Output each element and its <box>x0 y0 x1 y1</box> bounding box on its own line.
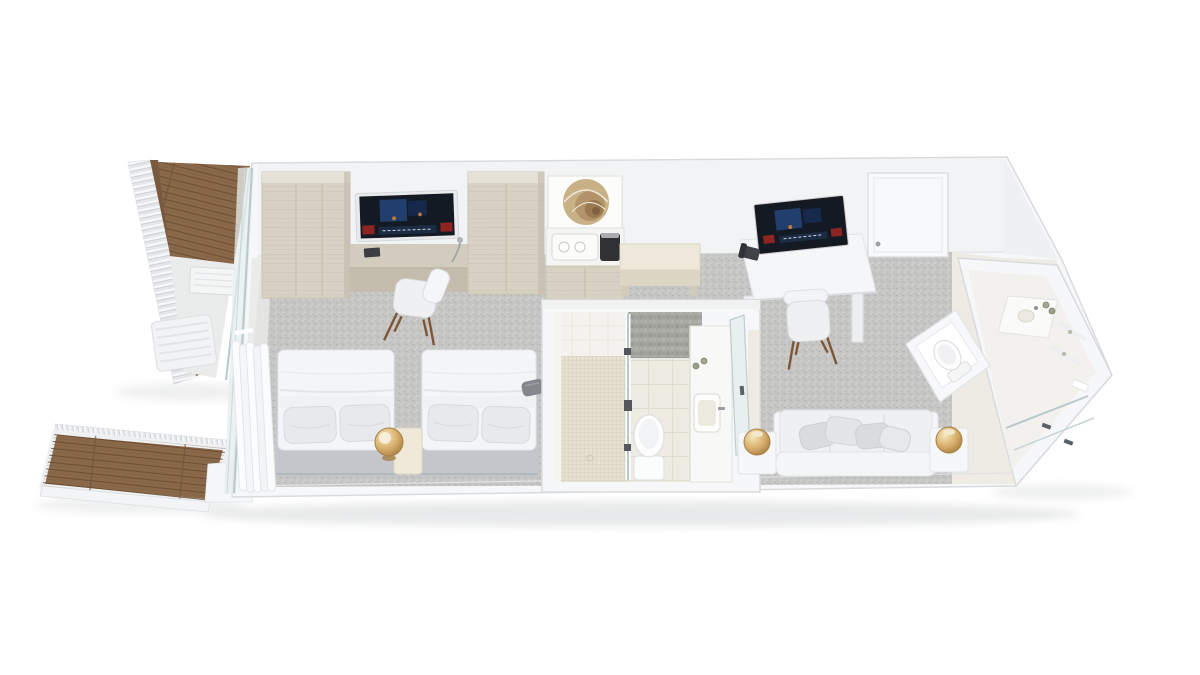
vanity <box>690 326 732 482</box>
cup <box>575 242 585 252</box>
shower-door-hinge <box>624 348 631 355</box>
sofa-backrest <box>776 452 936 476</box>
toilet <box>634 415 664 480</box>
side-table-left <box>738 429 776 474</box>
floorplan-render <box>0 0 1200 675</box>
faucet-2 <box>1034 306 1038 310</box>
amenity-bottle <box>1049 308 1055 314</box>
wardrobe-1-side-face <box>344 172 350 298</box>
twin-bed-2 <box>420 350 538 476</box>
sink-basin <box>698 400 716 426</box>
wall-tv <box>355 190 459 242</box>
amenity-bottle <box>1043 302 1049 308</box>
shower-wall-tiles <box>554 312 628 356</box>
walk-in-shower <box>554 312 628 482</box>
faucet <box>718 407 725 410</box>
bathroom-center <box>542 300 760 492</box>
bench-front <box>620 270 700 286</box>
entry-gap <box>748 330 759 440</box>
chair-seat <box>786 300 831 343</box>
wardrobe-2 <box>468 172 544 294</box>
entry-door-handle <box>740 386 745 395</box>
shower-handle <box>1064 439 1074 446</box>
amenity-bottle <box>693 363 699 369</box>
wardrobe-1 <box>262 172 350 298</box>
nautilus-artwork <box>548 176 622 228</box>
wardrobe-1-top-face <box>262 172 350 183</box>
desktop-tv <box>754 195 849 254</box>
twin-bed-1 <box>276 350 396 476</box>
outdoor-table <box>151 314 217 372</box>
cup <box>559 242 569 252</box>
curtain <box>232 339 276 493</box>
desk-leg <box>852 292 863 342</box>
ac-unit <box>189 267 236 295</box>
bench-top <box>620 244 700 270</box>
shower-door-hinge <box>624 444 631 451</box>
toilet-tank <box>634 456 664 480</box>
amenity-bottle <box>701 358 707 364</box>
door-handle <box>876 242 881 247</box>
shower-door-handle <box>624 400 632 411</box>
entrance-door <box>868 173 948 257</box>
desk-accessory <box>364 247 381 257</box>
side-table-right <box>930 427 968 472</box>
vanity-2 <box>998 296 1058 338</box>
minibar <box>546 228 624 300</box>
